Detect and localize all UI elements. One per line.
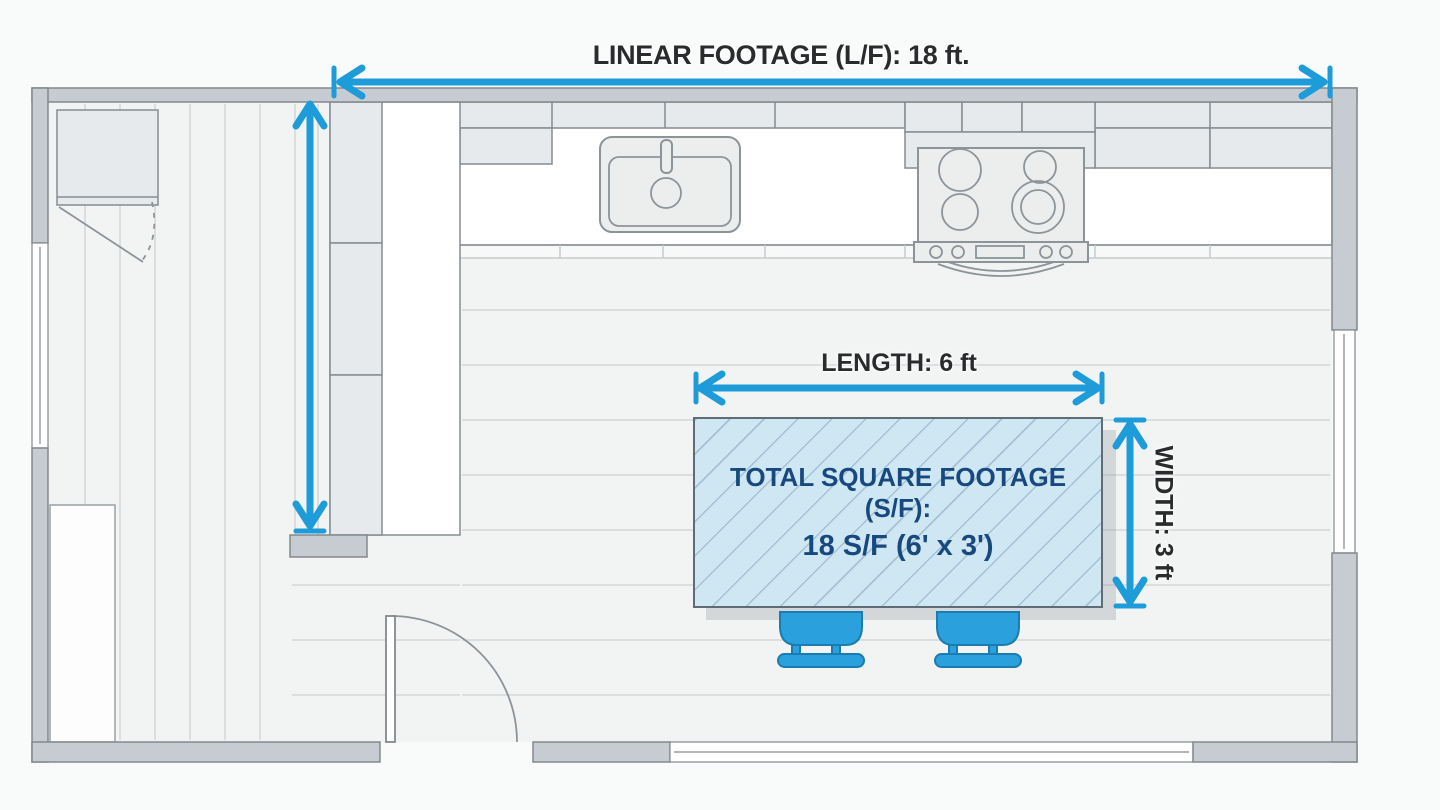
- door-leaf: [386, 616, 395, 742]
- kitchen-floor-plan: [0, 0, 1440, 810]
- bottom-wall-left: [32, 742, 380, 762]
- right-wall-lower: [1332, 553, 1357, 762]
- left-wall-lower: [32, 448, 48, 762]
- kitchen-island: TOTAL SQUARE FOOTAGE (S/F): 18 S/F (6' x…: [693, 417, 1103, 608]
- faucet-icon: [661, 140, 672, 173]
- top-wall: [32, 88, 1357, 102]
- left-room-cabinet: [50, 505, 115, 742]
- stove: [905, 102, 1095, 276]
- right-wall-upper: [1332, 88, 1357, 330]
- bar-stool-1: [778, 612, 864, 667]
- stool-base: [778, 654, 864, 667]
- linear-footage-title: LINEAR FOOTAGE (L/F): 18 ft.: [593, 40, 970, 71]
- bar-stool-2: [935, 612, 1021, 667]
- stool-leg: [792, 645, 800, 654]
- width-label: WIDTH: 3 ft: [1149, 446, 1178, 581]
- length-label: LENGTH: 6 ft: [821, 349, 977, 378]
- left-wall-upper: [32, 88, 48, 243]
- bottom-wall-right: [1193, 742, 1357, 762]
- stool-leg: [832, 645, 840, 654]
- counter-top-run: [382, 102, 1332, 258]
- stool-seat: [780, 612, 862, 645]
- sink: [600, 137, 740, 232]
- bottom-wall-mid: [533, 742, 670, 762]
- island-square-footage-label: TOTAL SQUARE FOOTAGE (S/F):: [695, 462, 1101, 524]
- lower-left-floor: [290, 535, 460, 742]
- counter-left-run: [330, 102, 460, 535]
- island-square-footage-value: 18 S/F (6' x 3'): [802, 531, 993, 563]
- counter-end-wall-stub: [290, 535, 367, 557]
